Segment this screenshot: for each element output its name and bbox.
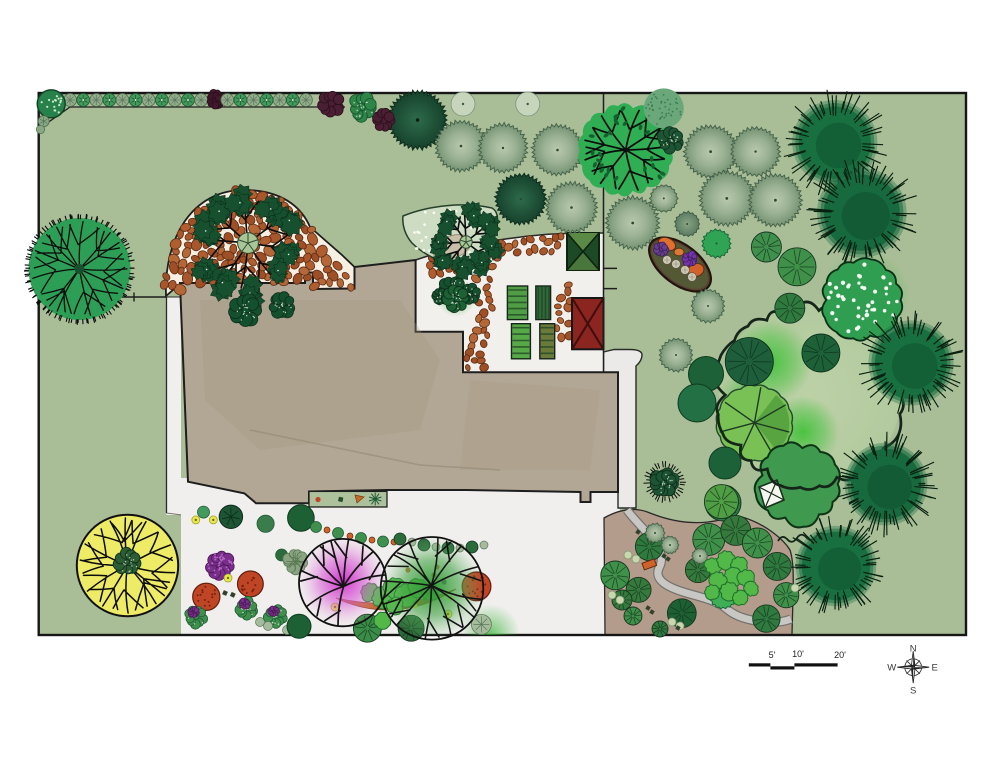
svg-text:E: E bbox=[932, 663, 938, 674]
svg-text:W: W bbox=[887, 663, 896, 674]
svg-text:20': 20' bbox=[834, 650, 846, 660]
svg-text:10': 10' bbox=[792, 649, 804, 659]
svg-text:S: S bbox=[910, 686, 916, 697]
svg-text:N: N bbox=[910, 644, 917, 655]
svg-text:5': 5' bbox=[769, 650, 776, 660]
